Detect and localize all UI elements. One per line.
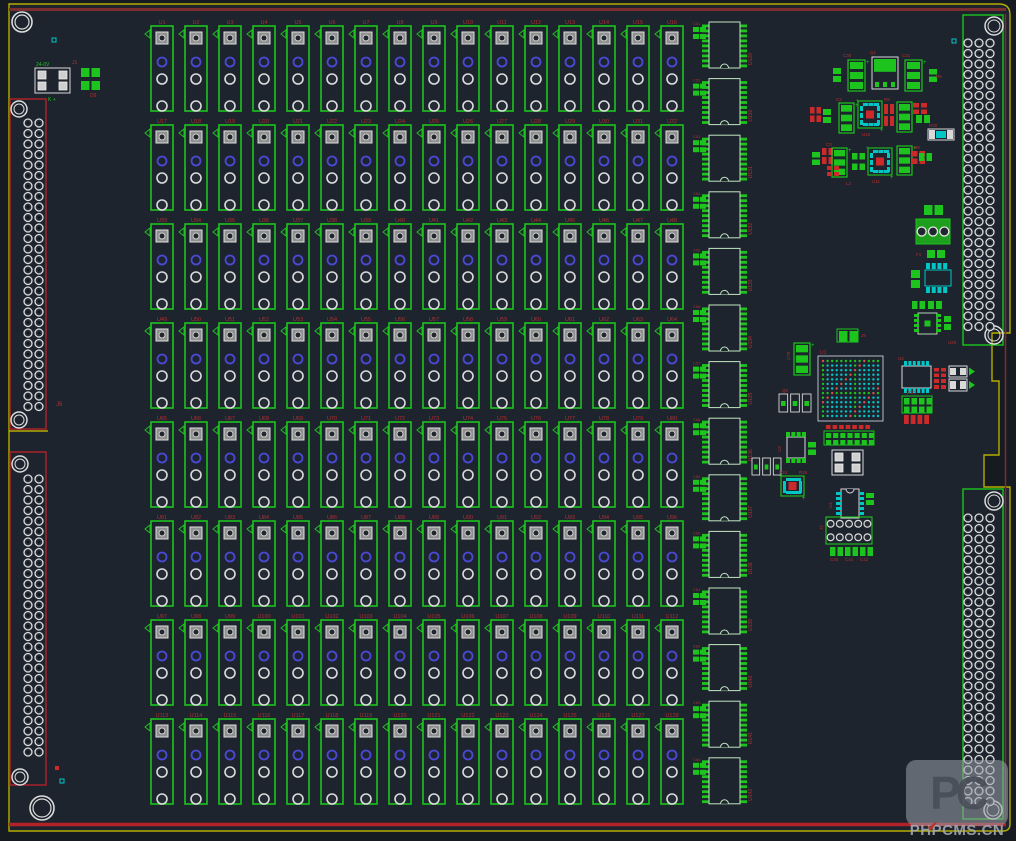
relay-pad bbox=[463, 794, 473, 804]
connector-pad-hole bbox=[967, 769, 970, 772]
silkscreen-text: U88 bbox=[395, 515, 405, 521]
connector-pad-hole bbox=[978, 538, 981, 541]
silkscreen-text: U108 bbox=[529, 614, 542, 620]
relay-pad-square-hole bbox=[363, 629, 369, 635]
relay-pad bbox=[191, 74, 201, 84]
silkscreen-text: C63 bbox=[693, 700, 701, 705]
relay-pad bbox=[191, 497, 201, 507]
redrow-component[interactable] bbox=[826, 425, 870, 429]
silkscreen-text: U47 bbox=[633, 218, 643, 224]
pad bbox=[834, 166, 839, 170]
connector-pad-hole bbox=[978, 716, 981, 719]
pcb-drawing[interactable]: U1U2U3U4U5U6U7U8U9U10U11U12U13U14U15U16U… bbox=[0, 0, 1016, 841]
silkscreen-text: U19 bbox=[225, 119, 235, 125]
dip-pin bbox=[740, 318, 747, 321]
relay-pad bbox=[191, 794, 201, 804]
dip-notch-icon bbox=[721, 64, 729, 68]
bga-ball bbox=[868, 387, 870, 389]
silkscreen-text: U137 bbox=[748, 506, 754, 518]
relay-pad-square-hole bbox=[601, 728, 607, 734]
dip-pin bbox=[740, 682, 747, 685]
silkscreen-text: U84 bbox=[259, 515, 269, 521]
relay-pad bbox=[531, 200, 541, 210]
relay-pad-square-hole bbox=[669, 134, 675, 140]
bga-ball bbox=[831, 406, 833, 408]
dip-pin bbox=[740, 143, 747, 146]
dip-pin bbox=[740, 30, 747, 33]
relay-pad bbox=[327, 569, 337, 579]
pad bbox=[863, 123, 868, 126]
dip-pin bbox=[740, 765, 747, 768]
silkscreen-text: U6 bbox=[328, 20, 335, 26]
connector-pad-hole bbox=[978, 737, 981, 740]
relay-pad bbox=[497, 569, 507, 579]
connector-pad-hole bbox=[989, 769, 992, 772]
connector-pad-hole bbox=[967, 325, 970, 328]
connector-pad-hole bbox=[38, 395, 41, 398]
pad bbox=[934, 385, 939, 389]
bga-ball bbox=[826, 364, 828, 366]
pad bbox=[852, 425, 857, 429]
bga-ball bbox=[836, 392, 838, 394]
connector-pad-hole bbox=[978, 262, 981, 265]
aux-pad bbox=[693, 34, 699, 39]
relay-pad-square-hole bbox=[567, 728, 573, 734]
bga-ball bbox=[845, 383, 847, 385]
dip-notch-icon bbox=[721, 517, 729, 521]
dip-pin bbox=[702, 234, 709, 237]
bga-ball bbox=[826, 392, 828, 394]
relay-pad bbox=[565, 470, 575, 480]
dip-pin bbox=[740, 672, 747, 675]
aux-pad bbox=[700, 204, 706, 209]
dip-pin bbox=[740, 106, 747, 109]
silkscreen-text: U73 bbox=[429, 416, 439, 422]
bga-ball bbox=[822, 396, 824, 398]
connector-pad-hole bbox=[27, 122, 30, 125]
relay-pad bbox=[327, 101, 337, 111]
relay-pad bbox=[157, 794, 167, 804]
connector-pad-hole bbox=[38, 562, 41, 565]
dip-notch-icon bbox=[721, 743, 729, 747]
bga-ball bbox=[822, 383, 824, 385]
silkscreen-text: U95 bbox=[633, 515, 643, 521]
pad bbox=[947, 130, 953, 139]
dip-pin bbox=[740, 384, 747, 387]
silkscreen-text: U134 bbox=[748, 336, 754, 348]
silkscreen-text: U96 bbox=[667, 515, 677, 521]
connector-pad-hole bbox=[978, 147, 981, 150]
relay-pad-square-hole bbox=[533, 332, 539, 338]
bga-ball bbox=[863, 383, 865, 385]
bga-ball bbox=[877, 383, 879, 385]
silkscreen-text: R24 bbox=[779, 470, 788, 475]
silkscreen-text: U105 bbox=[427, 614, 440, 620]
relay-pad bbox=[327, 767, 337, 777]
thermal-pad bbox=[866, 111, 874, 119]
relay-pad-square-hole bbox=[465, 431, 471, 437]
relay-pad bbox=[429, 200, 439, 210]
dip-pin bbox=[740, 45, 747, 48]
aux-pad bbox=[693, 593, 699, 598]
aux-pad bbox=[700, 706, 706, 711]
connector-pad-hole bbox=[978, 664, 981, 667]
silkscreen-text: U10 bbox=[862, 132, 871, 137]
relay-pad-square-hole bbox=[499, 629, 505, 635]
pad bbox=[924, 115, 930, 123]
relay-pad bbox=[157, 272, 167, 282]
relay-pad bbox=[191, 668, 201, 678]
bga-ball bbox=[868, 410, 870, 412]
connector-pad-hole bbox=[967, 706, 970, 709]
relay-pad-square-hole bbox=[193, 629, 199, 635]
relay-pad bbox=[531, 299, 541, 309]
pad bbox=[914, 319, 919, 322]
connector-pad-hole bbox=[967, 748, 970, 751]
pad bbox=[887, 153, 890, 158]
relay-pad bbox=[599, 470, 609, 480]
dip-pin bbox=[740, 50, 747, 53]
dip-pin bbox=[740, 374, 747, 377]
relay-pad bbox=[191, 371, 201, 381]
pad bbox=[81, 81, 90, 90]
bga-ball bbox=[858, 378, 860, 380]
connector-pad-hole bbox=[989, 601, 992, 604]
bga-ball bbox=[822, 415, 824, 417]
dip-pin bbox=[702, 682, 709, 685]
connector-pad-hole bbox=[967, 779, 970, 782]
bga-ball bbox=[840, 383, 842, 385]
silkscreen-text: U97 bbox=[157, 614, 167, 620]
bga-ball bbox=[845, 415, 847, 417]
dip-pin bbox=[740, 436, 747, 439]
silkscreen-text: Q1 bbox=[870, 50, 877, 55]
relay-pad bbox=[225, 74, 235, 84]
connector-pad-hole bbox=[27, 405, 30, 408]
bga-ball bbox=[854, 392, 856, 394]
silkscreen-text: U124 bbox=[529, 713, 542, 719]
relay-pad-square-hole bbox=[601, 35, 607, 41]
hdr-component[interactable] bbox=[902, 396, 932, 413]
pad bbox=[836, 534, 843, 541]
connector-pad-hole bbox=[978, 632, 981, 635]
relay-pad-square-hole bbox=[329, 332, 335, 338]
aux-pad bbox=[700, 536, 706, 541]
relay-pad-square-hole bbox=[397, 233, 403, 239]
silkscreen-text: U120 bbox=[393, 713, 406, 719]
dip-pin bbox=[702, 780, 709, 783]
connector-pad-hole bbox=[27, 562, 30, 565]
silkscreen-text: U98 bbox=[191, 614, 201, 620]
relay-pad bbox=[497, 371, 507, 381]
dip-pin bbox=[740, 389, 747, 392]
connector-pad-hole bbox=[967, 580, 970, 583]
dip-pin bbox=[740, 209, 747, 212]
relay-pad bbox=[463, 272, 473, 282]
relay-pad bbox=[395, 200, 405, 210]
dip-pin bbox=[702, 224, 709, 227]
relay-pad bbox=[395, 569, 405, 579]
pad bbox=[838, 547, 844, 556]
bga-ball bbox=[858, 415, 860, 417]
connector-pad-hole bbox=[978, 84, 981, 87]
bga-ball bbox=[854, 360, 856, 362]
dip-pin bbox=[740, 421, 747, 424]
pad bbox=[960, 381, 966, 389]
dip-pin bbox=[702, 704, 709, 707]
bga-ball bbox=[826, 374, 828, 376]
dip-pin bbox=[702, 158, 709, 161]
connector-pad-hole bbox=[967, 94, 970, 97]
dip-pin bbox=[740, 729, 747, 732]
dip-pin bbox=[740, 667, 747, 670]
relay-pad bbox=[157, 470, 167, 480]
dip-pin bbox=[702, 308, 709, 311]
bga-ball bbox=[868, 392, 870, 394]
relay-pad bbox=[259, 668, 269, 678]
silkscreen-text: U3 bbox=[226, 20, 233, 26]
connector-pad-hole bbox=[989, 559, 992, 562]
relay-pad bbox=[395, 497, 405, 507]
tab-pad bbox=[874, 59, 896, 72]
silkscreen-text: U78 bbox=[599, 416, 609, 422]
relay-pad bbox=[361, 668, 371, 678]
connector-pad-hole bbox=[967, 716, 970, 719]
silkscreen-text: U127 bbox=[631, 713, 644, 719]
relay-pad bbox=[667, 668, 677, 678]
pad bbox=[877, 120, 880, 125]
bga-component[interactable] bbox=[818, 356, 883, 421]
connector-pad-hole bbox=[978, 517, 981, 520]
silkscreen-text: U123 bbox=[495, 713, 508, 719]
connector-pad-hole bbox=[27, 269, 30, 272]
connector-pad-hole bbox=[978, 601, 981, 604]
connector-pad-hole bbox=[989, 283, 992, 286]
connector-pad-hole bbox=[38, 206, 41, 209]
dip-pin bbox=[702, 333, 709, 336]
connector-pad-hole bbox=[967, 685, 970, 688]
connector-pad-hole bbox=[967, 115, 970, 118]
dip-pin bbox=[740, 539, 747, 542]
relay-pad bbox=[327, 74, 337, 84]
bga-ball bbox=[872, 415, 874, 417]
pad bbox=[912, 301, 918, 309]
dip-pin bbox=[702, 497, 709, 500]
connector-pad-hole bbox=[38, 216, 41, 219]
dip-pin bbox=[702, 569, 709, 572]
bga-ball bbox=[863, 378, 865, 380]
connector-pad-hole bbox=[967, 105, 970, 108]
bga-ball bbox=[854, 415, 856, 417]
relay-pad bbox=[395, 173, 405, 183]
relay-pad bbox=[497, 101, 507, 111]
connector-pad-hole bbox=[27, 656, 30, 659]
pad bbox=[855, 433, 860, 438]
aux-pad bbox=[700, 430, 706, 435]
bga-ball bbox=[854, 364, 856, 366]
bga-ball bbox=[858, 369, 860, 371]
bga-ball bbox=[849, 360, 851, 362]
silkscreen-text: U102 bbox=[325, 614, 338, 620]
dip-pin bbox=[702, 790, 709, 793]
connector-pad-hole bbox=[27, 740, 30, 743]
relay-pad bbox=[225, 767, 235, 777]
silkscreen-text: VCC bbox=[906, 390, 916, 395]
pad bbox=[917, 388, 920, 393]
connector-pad-hole bbox=[38, 269, 41, 272]
silkscreen-text: U22 bbox=[327, 119, 337, 125]
silkscreen-text: C52 bbox=[693, 78, 701, 83]
relay-pad-square-hole bbox=[669, 233, 675, 239]
pad bbox=[59, 71, 67, 79]
relay-pad bbox=[395, 596, 405, 606]
connector-pad-hole bbox=[27, 478, 30, 481]
relay-pad bbox=[361, 470, 371, 480]
pad bbox=[941, 385, 946, 389]
dip-pin bbox=[740, 333, 747, 336]
bga-ball bbox=[858, 374, 860, 376]
connector-pad-hole bbox=[978, 273, 981, 276]
pad bbox=[914, 314, 919, 317]
aux-pad bbox=[693, 657, 699, 662]
silkscreen-text: U87 bbox=[361, 515, 371, 521]
pad bbox=[911, 415, 916, 424]
connector-pad-hole bbox=[27, 551, 30, 554]
bga-ball bbox=[840, 364, 842, 366]
relay-pad bbox=[667, 470, 677, 480]
relay-pad bbox=[259, 101, 269, 111]
relay-pad-square-hole bbox=[635, 530, 641, 536]
aux-pad bbox=[700, 713, 706, 718]
connector-pad-hole bbox=[978, 199, 981, 202]
bga-ball bbox=[849, 415, 851, 417]
silkscreen-text: U71 bbox=[361, 416, 371, 422]
connector-pad-hole bbox=[38, 740, 41, 743]
connector-pad-hole bbox=[978, 304, 981, 307]
connector-pad-hole bbox=[978, 800, 981, 803]
connector-pad-hole bbox=[989, 695, 992, 698]
connector-pad-hole bbox=[989, 727, 992, 730]
pad bbox=[859, 507, 864, 510]
silkscreen-text: U115 bbox=[224, 713, 237, 719]
aux-pad bbox=[693, 147, 699, 152]
dip-pin bbox=[740, 487, 747, 490]
relay-pad bbox=[667, 398, 677, 408]
dip-pin bbox=[702, 456, 709, 459]
relay-pad bbox=[463, 398, 473, 408]
pad bbox=[846, 534, 853, 541]
term3-component[interactable] bbox=[916, 219, 950, 244]
relay-pad bbox=[157, 668, 167, 678]
bga-ball bbox=[863, 396, 865, 398]
connector-pad-hole bbox=[38, 604, 41, 607]
dip-pin bbox=[740, 271, 747, 274]
bga-ball bbox=[849, 369, 851, 371]
dip-pin bbox=[740, 534, 747, 537]
pad bbox=[862, 433, 867, 438]
relay-pad-square-hole bbox=[669, 35, 675, 41]
connector-pad-hole bbox=[38, 290, 41, 293]
relay-pad bbox=[633, 668, 643, 678]
silkscreen-text: U132 bbox=[748, 223, 754, 235]
relay-pad bbox=[361, 74, 371, 84]
pad bbox=[786, 478, 791, 481]
silkscreen-text: C3 bbox=[826, 142, 832, 147]
dip-pin bbox=[740, 153, 747, 156]
silkscreen-text: U65 bbox=[157, 416, 167, 422]
pad bbox=[913, 110, 919, 115]
relay-pad bbox=[497, 596, 507, 606]
silkscreen-text: U58 bbox=[463, 317, 473, 323]
bga-ball bbox=[877, 360, 879, 362]
pad bbox=[793, 401, 798, 406]
bga-ball bbox=[877, 374, 879, 376]
aux-pad bbox=[693, 310, 699, 315]
bga-ball bbox=[854, 396, 856, 398]
silkscreen-text: U109 bbox=[563, 614, 576, 620]
bga-ball bbox=[831, 387, 833, 389]
dip-pin bbox=[740, 426, 747, 429]
dip-pin bbox=[740, 178, 747, 181]
relay-pad bbox=[157, 371, 167, 381]
connector-pad-hole bbox=[978, 685, 981, 688]
pad bbox=[936, 324, 941, 327]
relay-pad bbox=[497, 299, 507, 309]
bga-ball bbox=[877, 406, 879, 408]
dip-pin bbox=[702, 194, 709, 197]
connector-pad-hole bbox=[989, 147, 992, 150]
pad bbox=[869, 440, 874, 445]
dip-pin bbox=[702, 785, 709, 788]
connector-pad-hole bbox=[967, 294, 970, 297]
dip-pin bbox=[702, 554, 709, 557]
pad bbox=[850, 62, 863, 69]
relay-pad bbox=[565, 497, 575, 507]
connector-pad-hole bbox=[38, 520, 41, 523]
connector-pad-hole bbox=[38, 279, 41, 282]
relay-pad bbox=[531, 371, 541, 381]
pad bbox=[869, 433, 874, 438]
relay-pad-square-hole bbox=[295, 233, 301, 239]
bga-ball bbox=[849, 410, 851, 412]
relay-pad-square-hole bbox=[261, 332, 267, 338]
pcb-layout-canvas[interactable]: U1U2U3U4U5U6U7U8U9U10U11U12U13U14U15U16U… bbox=[0, 0, 1016, 841]
bga-ball bbox=[836, 415, 838, 417]
connector-pad-hole bbox=[27, 488, 30, 491]
pad bbox=[836, 497, 841, 500]
dip-pin bbox=[702, 281, 709, 284]
dip-pin bbox=[740, 549, 747, 552]
relay-pad bbox=[531, 596, 541, 606]
bga-ball bbox=[872, 369, 874, 371]
relay-pad bbox=[667, 695, 677, 705]
dip-pin bbox=[702, 111, 709, 114]
bga-ball bbox=[836, 387, 838, 389]
aux-pad bbox=[693, 91, 699, 96]
silkscreen-text: U125 bbox=[563, 713, 576, 719]
aux-pad bbox=[700, 487, 706, 492]
connector-pad-hole bbox=[38, 195, 41, 198]
connector-pad-hole bbox=[989, 220, 992, 223]
redsq-component[interactable] bbox=[55, 766, 59, 770]
connector-pad-hole bbox=[978, 231, 981, 234]
relay-pad-square-hole bbox=[193, 431, 199, 437]
connector-pad-hole bbox=[989, 622, 992, 625]
pad bbox=[913, 361, 916, 366]
connector-pad-hole bbox=[989, 178, 992, 181]
dip-notch-icon bbox=[721, 687, 729, 691]
pad bbox=[827, 172, 832, 176]
